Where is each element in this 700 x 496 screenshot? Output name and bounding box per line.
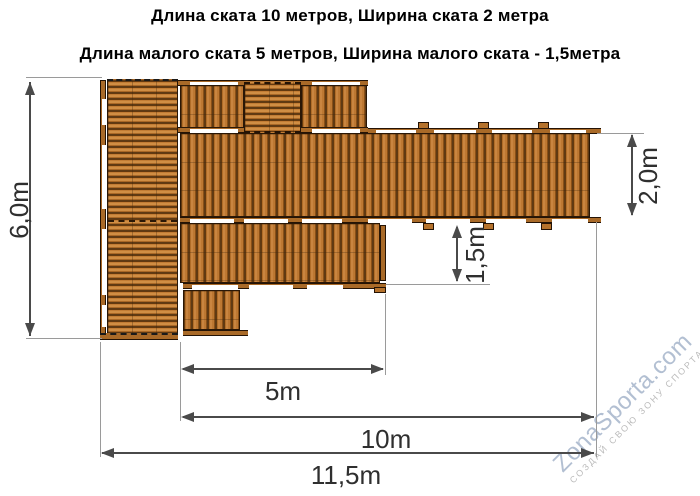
title-main-ramp: Длина ската 10 метров, Ширина ската 2 ме… [0,6,700,26]
rail-bracket [423,223,434,230]
dim-label-small-width: 1,5m [462,225,488,285]
top-strip-center-panel [244,82,301,133]
top-strip-right-deck [301,85,367,128]
small-ramp-end-cap [380,225,386,281]
dim-label-main-length: 10m [336,426,436,452]
dim-label-total-height: 6,0m [6,180,32,240]
rail-slot [102,145,106,209]
arrow-left-icon [101,448,114,458]
rail-slot [102,99,106,125]
dim-label-total-length: 11,5m [286,462,406,488]
top-strip-left-deck [180,85,244,128]
extension-line [100,342,101,457]
bottom-platform-rail [183,330,248,336]
arrow-left-icon [181,364,194,374]
ramp-plan-diagram: Длина ската 10 метров, Ширина ската 2 ме… [0,0,700,496]
rail-slot [102,305,106,327]
arrow-down-icon [25,323,35,336]
rail-bracket [538,122,549,129]
extension-line [26,77,102,78]
rail-slot [192,285,238,289]
rail-bracket [478,122,489,129]
arrow-up-icon [25,82,35,95]
arrow-right-icon [581,448,594,458]
main-ramp-deck [180,133,590,217]
platform-divider-line [108,220,177,222]
dim-label-small-length: 5m [233,378,333,404]
bottom-platform-section [183,290,240,330]
dim-label-main-width: 2,0m [635,146,661,206]
small-ramp-deck [180,223,380,283]
rail-slot [307,285,343,289]
arrow-right-icon [581,412,594,422]
arrow-right-icon [371,364,384,374]
watermark-rotated-block: ZonaSporta.com СОЗДАЙ СВОЮ ЗОНУ СПОРТА [550,329,700,485]
rail-slot [552,219,588,223]
left-platform-section [107,79,178,334]
extension-line [26,338,102,339]
rail-slot [102,229,106,295]
rail-slot [249,285,293,289]
extension-line [596,222,597,457]
rail-bracket [541,223,552,230]
dim-line-main-length [183,416,594,418]
left-edge-rail [100,80,106,338]
rail-bracket [374,287,386,293]
rail-bracket [418,122,429,129]
watermark-brand-text: ZonaSporta.com [550,329,697,476]
title-small-ramp: Длина малого ската 5 метров, Ширина мало… [0,44,700,64]
small-deck-lower-rail [183,283,386,289]
dim-line-small-length [183,368,383,370]
watermark: ZonaSporta.com СОЗДАЙ СВОЮ ЗОНУ СПОРТА [528,322,700,492]
extension-line [180,342,181,421]
dim-line-total-length [102,452,594,454]
arrow-left-icon [181,412,194,422]
extension-line [385,294,386,375]
left-platform-base-bar [100,333,178,340]
